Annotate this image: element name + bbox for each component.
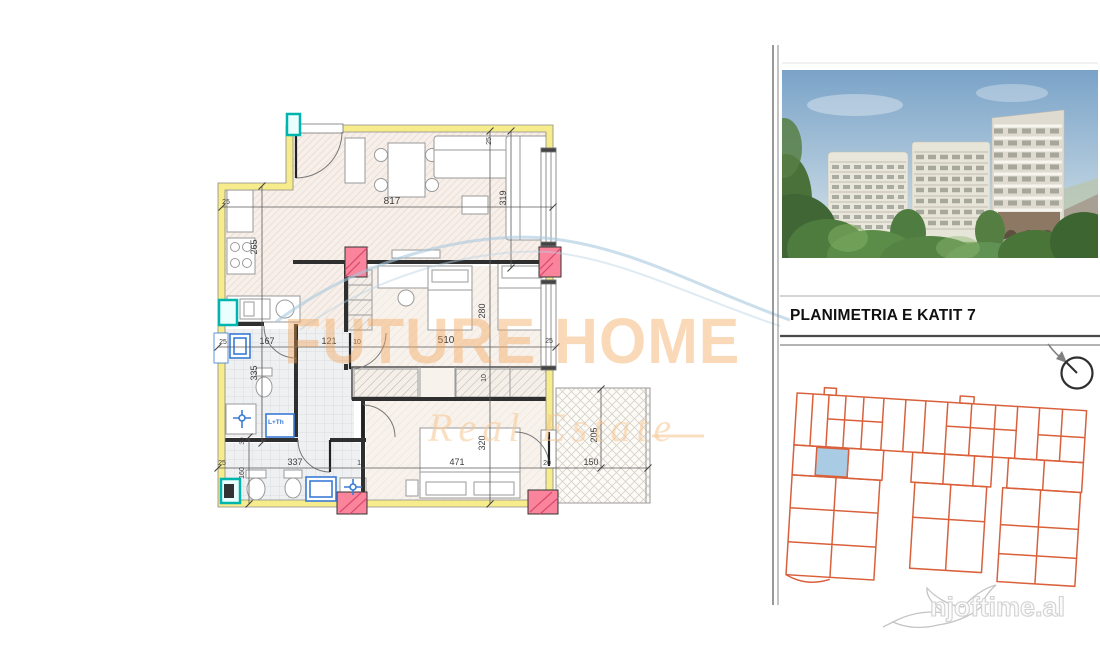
key-plan-highlight-unit — [815, 447, 849, 477]
svg-text:471: 471 — [449, 457, 464, 467]
svg-text:25: 25 — [486, 137, 493, 145]
svg-text:10: 10 — [357, 460, 365, 467]
svg-text:30: 30 — [239, 437, 246, 445]
orientation-indicator-icon — [1048, 344, 1093, 389]
svg-text:167: 167 — [259, 336, 274, 346]
njoftime-logo-text: njoftime.al — [930, 592, 1065, 623]
washer-dryer-label: L+Th — [268, 419, 284, 426]
utility-box — [287, 114, 300, 135]
listing-image: 8172531926525167121105102528010320335301… — [0, 0, 1100, 650]
svg-text:25: 25 — [219, 339, 227, 346]
desk — [378, 266, 436, 288]
project-render-image — [753, 70, 1100, 284]
svg-text:817: 817 — [384, 196, 401, 207]
svg-text:150: 150 — [583, 457, 598, 467]
watermark-brand: FUTURE HOME — [284, 304, 740, 378]
watermark-tagline: Real Estate — [428, 404, 677, 451]
svg-text:265: 265 — [249, 239, 259, 254]
coffee-table — [462, 196, 488, 214]
floor-plan-title: PLANIMETRIA E KATIT 7 — [790, 307, 976, 325]
nightstand — [406, 480, 418, 496]
svg-text:25: 25 — [218, 460, 226, 467]
right-panel — [753, 45, 1100, 627]
svg-text:335: 335 — [249, 365, 259, 380]
svg-text:20: 20 — [543, 460, 551, 467]
cabinet — [345, 138, 365, 183]
living-window — [541, 148, 556, 246]
key-plan — [786, 386, 1087, 598]
svg-text:337: 337 — [287, 457, 302, 467]
svg-text:160: 160 — [239, 467, 246, 479]
utility-box — [219, 300, 237, 325]
svg-text:319: 319 — [498, 190, 508, 205]
bathroom1-window — [214, 333, 228, 363]
svg-text:25: 25 — [222, 199, 230, 206]
